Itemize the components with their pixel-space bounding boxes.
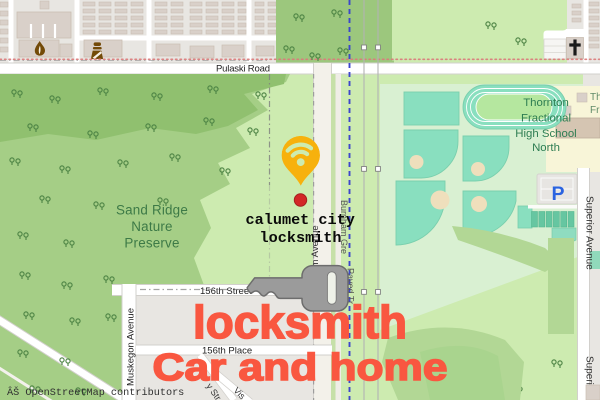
svg-text:P: P [552,183,565,205]
svg-text:ÂŠ OpenStreetMap contributors: ÂŠ OpenStreetMap contributors [7,385,184,399]
svg-text:North: North [532,142,560,154]
svg-text:Car and home: Car and home [153,347,448,389]
svg-text:locksmith: locksmith [193,296,407,348]
svg-text:Th: Th [590,92,600,103]
svg-text:Fractional: Fractional [521,113,571,125]
svg-text:Nature: Nature [131,219,172,234]
svg-text:High School: High School [515,128,576,140]
svg-text:calumet city: calumet city [246,211,355,229]
svg-text:Thornton: Thornton [523,97,569,109]
svg-text:Fr: Fr [590,105,600,116]
svg-text:Superior Avenue: Superior Avenue [584,196,595,270]
svg-text:Preserve: Preserve [124,236,179,251]
svg-text:Muskegon Avenue: Muskegon Avenue [126,308,137,386]
svg-text:locksmith: locksmith [260,229,342,247]
svg-text:Pulaski Road: Pulaski Road [216,64,270,75]
svg-text:Sand Ridge: Sand Ridge [116,203,188,218]
